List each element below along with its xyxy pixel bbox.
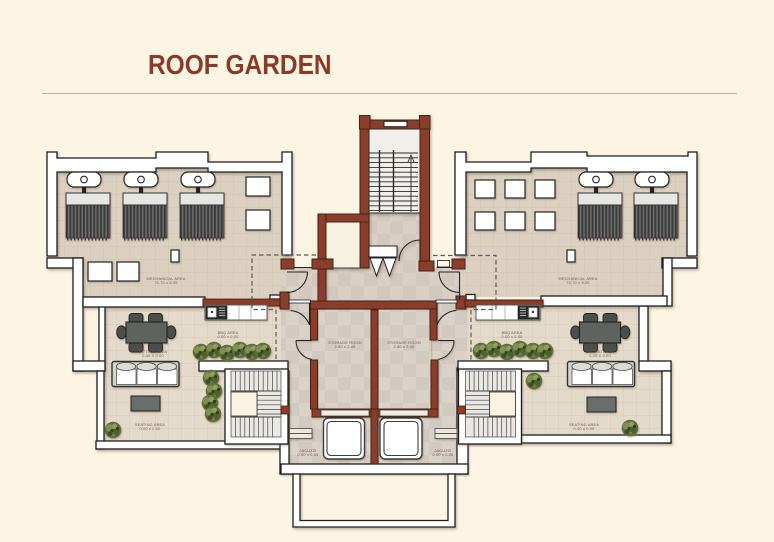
svg-text:2.80 x 2.45: 2.80 x 2.45 xyxy=(335,345,356,349)
svg-text:0.00 x 0.00: 0.00 x 0.00 xyxy=(502,335,523,339)
svg-text:70.70 x 5.95: 70.70 x 5.95 xyxy=(566,281,589,285)
svg-text:0.00 x 0.00: 0.00 x 0.00 xyxy=(218,335,239,339)
svg-text:0.00 x 0.00: 0.00 x 0.00 xyxy=(140,427,161,431)
svg-text:0.00 x 0.00: 0.00 x 0.00 xyxy=(574,427,595,431)
svg-text:0.00 X 0.00: 0.00 X 0.00 xyxy=(589,354,611,358)
svg-text:0.00 x 0.00: 0.00 x 0.00 xyxy=(298,453,319,457)
svg-text:0.00 X 0.00: 0.00 X 0.00 xyxy=(142,354,164,358)
svg-text:2.80 x 2.45: 2.80 x 2.45 xyxy=(394,345,415,349)
svg-text:0.00 x 0.00: 0.00 x 0.00 xyxy=(433,453,454,457)
svg-text:70.70 x 5.95: 70.70 x 5.95 xyxy=(154,281,177,285)
